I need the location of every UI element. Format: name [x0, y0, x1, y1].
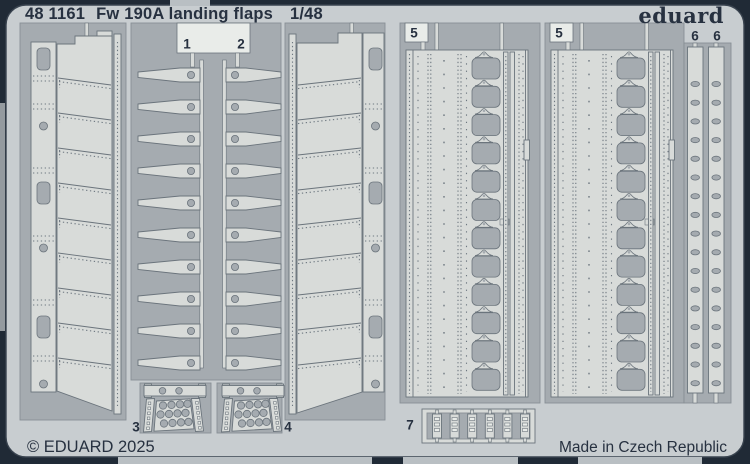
- page-title: Fw 190A landing flaps: [96, 5, 273, 23]
- sprue-tab-bottom-1: [118, 457, 372, 464]
- part-lattice-1: [405, 23, 530, 397]
- scale-label: 1/48: [290, 5, 323, 23]
- brand-logo: eduard: [638, 3, 724, 28]
- part-label-7: 7: [406, 418, 414, 433]
- header-text: 48 1161Fw 190A landing flaps1/48: [25, 5, 323, 24]
- part-hinge-set-7: [422, 409, 535, 443]
- part-label-2: 2: [237, 37, 245, 52]
- part-flap-skin-left: [31, 23, 121, 414]
- part-label-5b: 5: [555, 26, 563, 41]
- part-label-1: 1: [183, 37, 191, 52]
- copyright-text: © EDUARD 2025: [27, 438, 155, 457]
- part-flap-skin-right: [289, 23, 384, 414]
- part-label-3: 3: [132, 420, 140, 435]
- part-label-6a: 6: [691, 29, 699, 44]
- pe-fret-graphic: [0, 0, 750, 464]
- sprue-tab-bottom-3: [578, 457, 702, 464]
- part-label-6b: 6: [713, 29, 721, 44]
- made-in-text: Made in Czech Republic: [559, 439, 727, 457]
- sprue-tab-bottom-2: [403, 457, 518, 464]
- pe-fret-product-photo: 48 1161Fw 190A landing flaps1/48 eduard …: [0, 0, 750, 464]
- part-label-5a: 5: [410, 26, 418, 41]
- sprue-tab-left: [0, 103, 5, 331]
- part-label-4: 4: [284, 420, 292, 435]
- catalog-number: 48 1161: [25, 5, 85, 23]
- part-lattice-2: [550, 23, 675, 397]
